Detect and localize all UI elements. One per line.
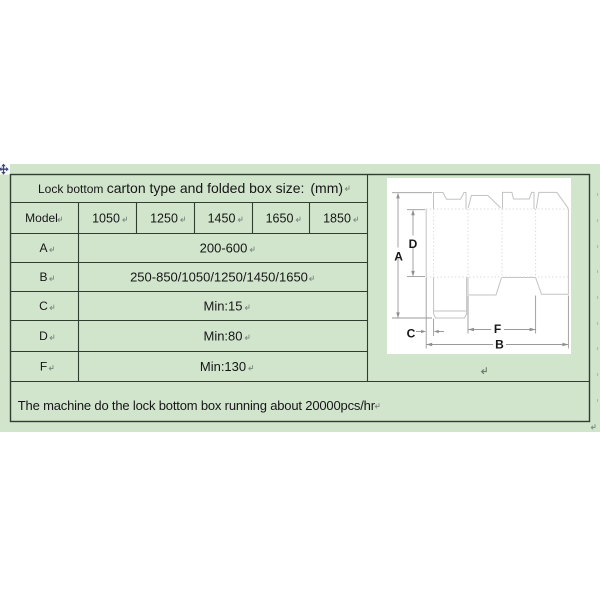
svg-text:D: D [39, 329, 48, 343]
svg-text:Min:80: Min:80 [203, 329, 242, 344]
svg-text:1650: 1650 [266, 212, 294, 226]
svg-text:Min:130: Min:130 [200, 359, 246, 374]
svg-text:C: C [407, 326, 416, 340]
svg-text:1250: 1250 [150, 212, 178, 226]
svg-text:B: B [495, 338, 504, 352]
svg-text:1450: 1450 [208, 212, 236, 226]
svg-text:A: A [39, 241, 47, 255]
svg-text:1050: 1050 [92, 212, 120, 226]
svg-text:200-600: 200-600 [200, 241, 248, 256]
svg-text:D: D [409, 237, 418, 251]
svg-text:The machine do the lock bott: The machine do the lock bottom box runni… [18, 398, 376, 413]
svg-text:1850: 1850 [323, 212, 351, 226]
svg-text:A: A [394, 249, 403, 263]
svg-text:F: F [40, 360, 47, 374]
svg-text:B: B [39, 270, 47, 284]
svg-text:Min:15: Min:15 [203, 299, 242, 314]
svg-text:Model: Model [25, 211, 58, 225]
svg-text:F: F [494, 322, 501, 336]
svg-text:C: C [39, 299, 48, 313]
svg-text:Lock bottom carton type and fo: Lock bottom carton type and folded box s… [38, 180, 343, 196]
svg-text:250-850/1050/1250/1450/1650: 250-850/1050/1250/1450/1650 [130, 270, 308, 285]
